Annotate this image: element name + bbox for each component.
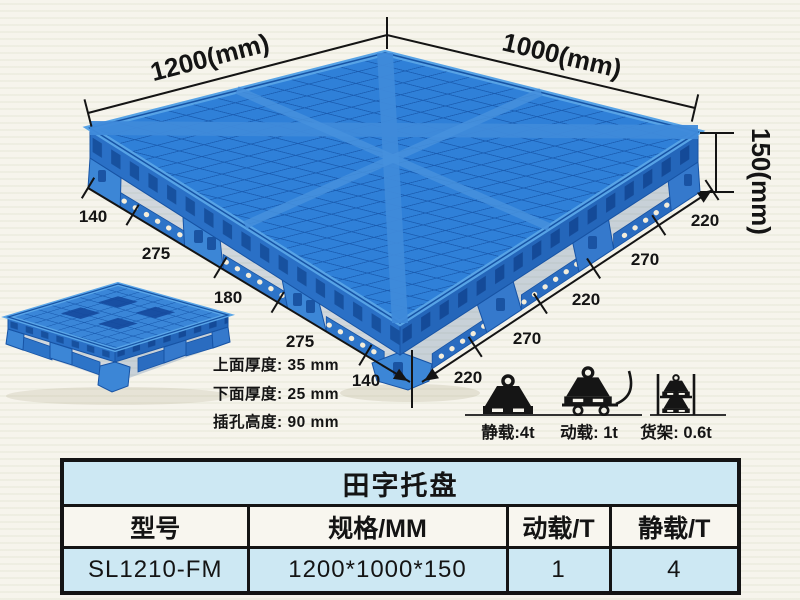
svg-text:220: 220 [691, 211, 719, 230]
note-fork-height: 插孔高度: 90 mm [213, 409, 383, 438]
svg-text:275: 275 [142, 244, 170, 263]
svg-text:140: 140 [79, 207, 107, 226]
spec-table-title-row: 田字托盘 [62, 460, 739, 506]
load-capacity-icons: 静载:4t 动载: 1t 货架: 0.6t [465, 368, 726, 442]
cell-dynamic-load: 1 [507, 548, 610, 594]
svg-text:220: 220 [454, 368, 482, 387]
static-load-label: 静载:4t [481, 422, 535, 442]
col-header-size: 规格/MM [248, 506, 507, 548]
svg-text:270: 270 [631, 250, 659, 269]
rack-load-icon [658, 374, 694, 415]
svg-text:275: 275 [286, 332, 314, 351]
note-top-thickness: 上面厚度: 35 mm [213, 352, 383, 381]
spec-table: 田字托盘 型号 规格/MM 动载/T 静载/T SL1210-FM 1200*1… [60, 458, 741, 595]
note-bottom-thickness: 下面厚度: 25 mm [213, 381, 383, 410]
dim-150-label: 150(mm) [746, 128, 776, 235]
svg-text:220: 220 [572, 290, 600, 309]
col-header-model: 型号 [62, 506, 248, 548]
thickness-notes: 上面厚度: 35 mm 下面厚度: 25 mm 插孔高度: 90 mm [213, 352, 383, 438]
spec-table-header-row: 型号 规格/MM 动载/T 静载/T [62, 506, 739, 548]
dim-1000-label: 1000(mm) [500, 27, 625, 84]
small-pallet-illustration [6, 284, 230, 392]
cell-size: 1200*1000*150 [248, 548, 507, 594]
dim-1200-label: 1200(mm) [147, 27, 272, 87]
catalog-page: { "diagram": { "length_label": "1200(mm)… [0, 0, 800, 600]
col-header-dynamic-load: 动载/T [507, 506, 610, 548]
col-header-static-load: 静载/T [610, 506, 739, 548]
static-load-icon [483, 376, 533, 414]
product-diagram: 1200(mm) 1000(mm) 150(mm) 140 275 180 27… [0, 0, 800, 455]
rack-load-label: 货架: 0.6t [640, 422, 712, 442]
svg-text:270: 270 [513, 329, 541, 348]
dynamic-load-label: 动载: 1t [560, 423, 618, 442]
cell-static-load: 4 [610, 548, 739, 594]
cell-model: SL1210-FM [62, 548, 248, 594]
dynamic-load-icon [562, 368, 631, 415]
spec-table-data-row: SL1210-FM 1200*1000*150 1 4 [62, 548, 739, 594]
spec-table-title: 田字托盘 [62, 460, 739, 506]
svg-text:180: 180 [214, 288, 242, 307]
